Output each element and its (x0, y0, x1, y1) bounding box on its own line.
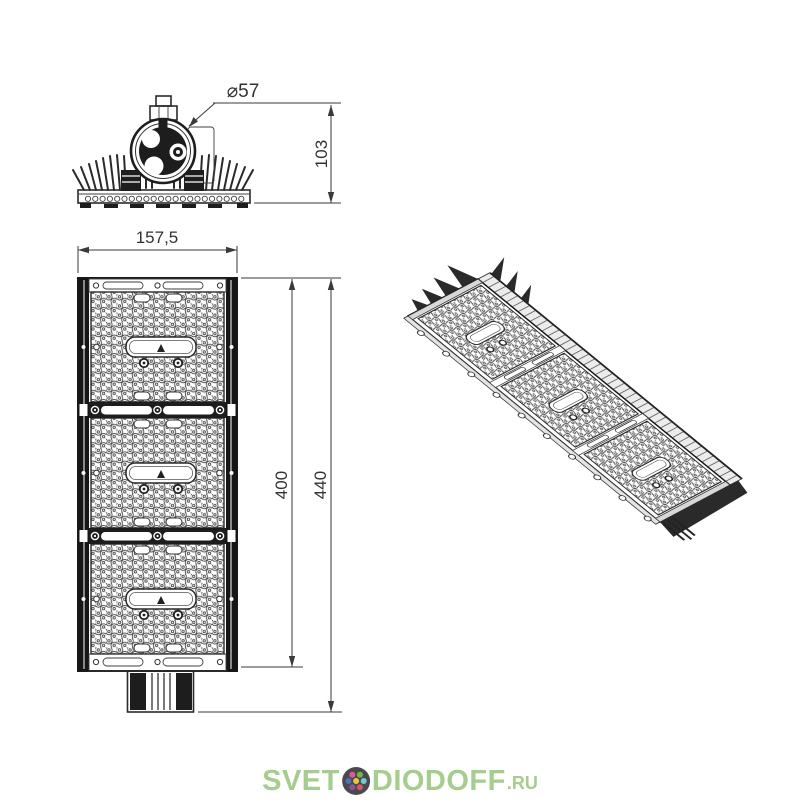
lens-edge-row (85, 196, 244, 201)
plan-view (78, 278, 237, 712)
watermark-domain-suffix: .RU (507, 770, 538, 796)
watermark-text-after: DIODOFF (372, 766, 506, 796)
width-dimension: 157,5 (78, 228, 237, 273)
diameter-label: ⌀57 (227, 81, 260, 102)
watermark-text-before: SVET (262, 766, 340, 796)
watermark: SVET DIODOFF .RU (262, 766, 538, 796)
height-label: 103 (312, 140, 331, 168)
technical-drawing-page: ⌀57 103 (0, 0, 800, 800)
width-label: 157,5 (136, 228, 179, 247)
led-logo-icon (341, 766, 371, 796)
bolt-cap (156, 96, 171, 106)
isometric-view (378, 244, 787, 547)
drawing-canvas: ⌀57 103 (0, 0, 800, 800)
divider-band-2 (89, 528, 226, 544)
diameter-dimension: ⌀57 (189, 81, 341, 127)
mounting-clamp (121, 96, 214, 191)
mounting-stub (128, 671, 194, 712)
front-view: ⌀57 103 (73, 81, 341, 208)
height-dimension: 103 (254, 105, 341, 203)
overall-length-label: 440 (311, 471, 330, 499)
body-length-label: 400 (272, 471, 291, 499)
divider-band-1 (89, 402, 226, 418)
heatsink-fins-left-icon (73, 155, 126, 190)
led-module-2 (91, 418, 224, 528)
led-module-3 (91, 544, 224, 654)
led-module-1 (91, 292, 224, 402)
leader-arrow-icon (189, 117, 198, 127)
heatsink-base (78, 190, 250, 208)
heatsink-fins-right-icon (200, 155, 253, 190)
